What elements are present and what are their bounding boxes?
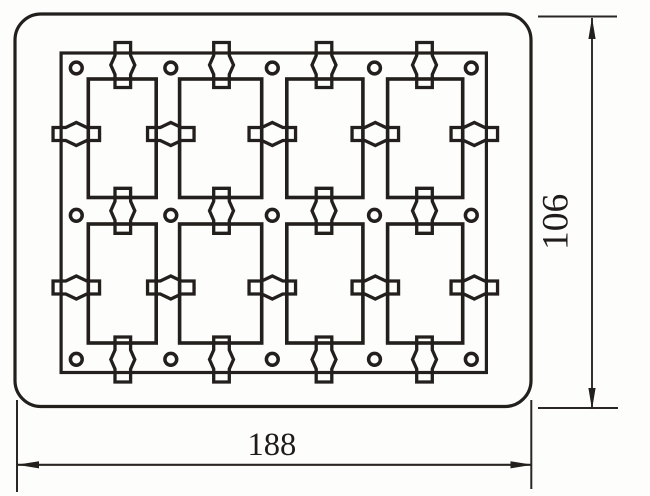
svg-text:106: 106 bbox=[536, 194, 577, 250]
svg-text:188: 188 bbox=[248, 427, 297, 463]
